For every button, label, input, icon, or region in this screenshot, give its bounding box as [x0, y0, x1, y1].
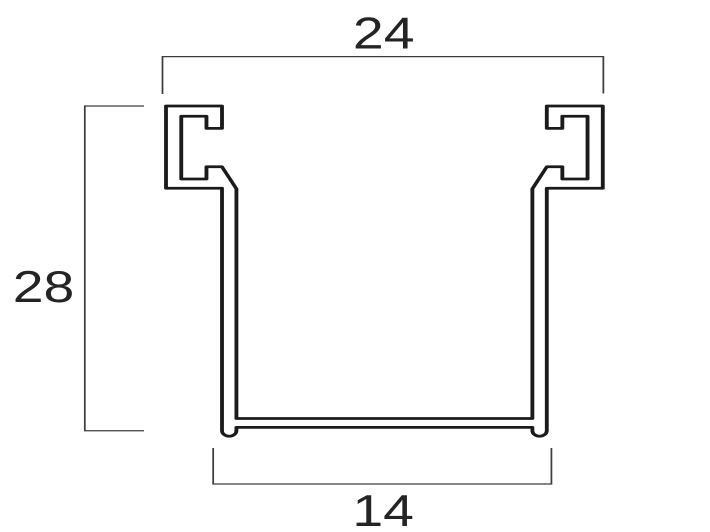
svg-text:24: 24: [353, 9, 415, 58]
svg-text:28: 28: [13, 262, 75, 311]
svg-text:14: 14: [352, 486, 414, 532]
